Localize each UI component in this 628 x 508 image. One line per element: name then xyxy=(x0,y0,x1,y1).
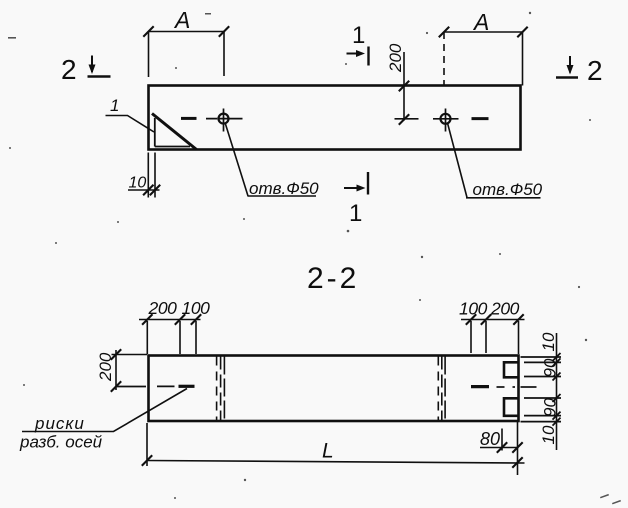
svg-text:90: 90 xyxy=(541,398,560,417)
svg-text:100: 100 xyxy=(459,299,488,319)
svg-text:A: A xyxy=(472,9,489,35)
svg-text:отв.Ф50: отв.Ф50 xyxy=(249,179,319,198)
svg-text:90: 90 xyxy=(541,358,560,377)
svg-text:1: 1 xyxy=(110,96,119,115)
svg-text:1: 1 xyxy=(349,200,362,227)
svg-text:отв.Ф50: отв.Ф50 xyxy=(473,180,543,199)
svg-text:риски: риски xyxy=(34,414,85,433)
svg-text:80: 80 xyxy=(480,429,500,449)
svg-text:L: L xyxy=(322,440,334,463)
svg-text:100: 100 xyxy=(182,298,211,318)
svg-text:200: 200 xyxy=(386,43,405,73)
svg-text:A: A xyxy=(173,7,190,33)
svg-text:2: 2 xyxy=(587,55,603,86)
svg-text:10: 10 xyxy=(539,425,558,444)
svg-text:10: 10 xyxy=(129,175,147,192)
svg-text:200: 200 xyxy=(148,298,178,318)
svg-text:разб. осей: разб. осей xyxy=(19,433,103,452)
svg-text:2: 2 xyxy=(61,54,77,85)
svg-text:2-2: 2-2 xyxy=(307,262,359,295)
svg-text:10: 10 xyxy=(539,332,558,351)
svg-text:1: 1 xyxy=(352,22,365,49)
svg-text:200: 200 xyxy=(490,299,520,319)
svg-text:200: 200 xyxy=(96,352,115,382)
